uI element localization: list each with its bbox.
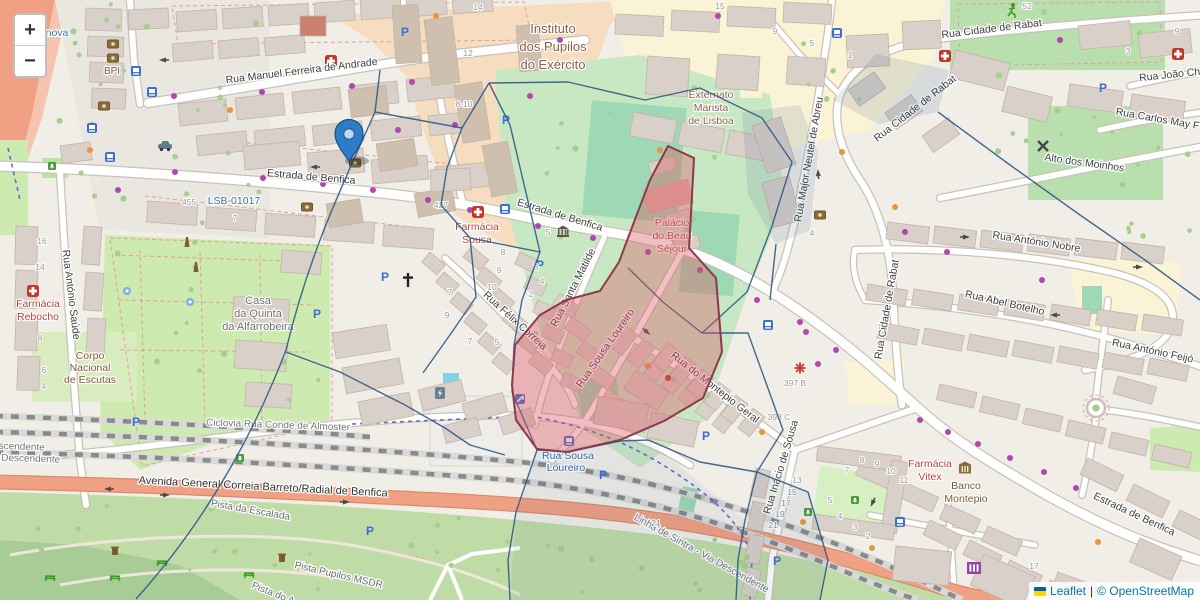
- house-number: 11: [900, 475, 909, 485]
- place-label: Farmácia: [908, 458, 952, 470]
- tree: [1187, 228, 1192, 233]
- tree: [120, 196, 126, 202]
- shop-dot-icon: [590, 235, 596, 241]
- shop-dot-icon: [815, 361, 821, 367]
- shop-dot-icon: [754, 297, 760, 303]
- fountain-icon: [186, 298, 194, 306]
- map-tiles[interactable]: PPPPPPPPPPPRua Manuel Ferreira de Andrad…: [0, 0, 1200, 600]
- street-label: Rua António Saúde: [60, 249, 83, 340]
- tree: [144, 24, 150, 30]
- tree: [109, 2, 113, 6]
- map-container[interactable]: PPPPPPPPPPPRua Manuel Ferreira de Andrad…: [0, 0, 1200, 600]
- tree: [197, 368, 202, 373]
- tree: [1054, 108, 1060, 114]
- tree: [287, 398, 291, 402]
- tree: [449, 563, 454, 568]
- tree: [1024, 138, 1029, 143]
- shop-dot-icon: [797, 319, 803, 325]
- tree: [212, 549, 217, 554]
- tree: [272, 563, 276, 567]
- tree: [218, 86, 222, 90]
- shop-dot-icon: [260, 175, 266, 181]
- atm-icon: [108, 54, 119, 62]
- place-label: Nacional: [70, 362, 111, 374]
- place-label: Corpo: [76, 350, 105, 362]
- shop-dot-icon: [395, 127, 401, 133]
- tree: [92, 193, 97, 198]
- building: [17, 356, 40, 391]
- tree: [830, 68, 836, 74]
- oneway-arrow-icon: [815, 169, 821, 179]
- shop-dot-icon: [349, 83, 355, 89]
- parking-icon: P: [702, 429, 710, 443]
- tree: [154, 359, 160, 365]
- tree: [122, 69, 126, 73]
- tree: [456, 516, 461, 521]
- building: [176, 9, 217, 32]
- house-number: 4: [540, 276, 545, 286]
- tree: [556, 146, 560, 150]
- tree: [196, 108, 200, 112]
- house-number: 2: [529, 289, 534, 299]
- house-number: 9: [1175, 26, 1180, 36]
- building: [83, 272, 104, 311]
- building: [326, 199, 363, 228]
- house-number: 9: [773, 26, 778, 36]
- house-number: 3: [853, 522, 858, 532]
- building: [967, 334, 1009, 357]
- shop-dot-icon: [975, 441, 981, 447]
- place-label: BPI: [104, 66, 120, 77]
- house-number: 7: [468, 336, 473, 346]
- place-label: Vitex: [918, 471, 942, 483]
- attribution-control: Leaflet | © OpenStreetMap: [1029, 582, 1200, 600]
- tree: [76, 527, 81, 532]
- amenity-dot-icon: [759, 429, 765, 435]
- tree: [545, 171, 550, 176]
- place-label: da Alfarrobeira: [222, 321, 294, 333]
- building: [727, 6, 776, 28]
- shop-dot-icon: [370, 187, 376, 193]
- house-number: 13: [792, 475, 802, 485]
- bus-stop-icon: [105, 152, 115, 162]
- tree: [1010, 131, 1015, 136]
- tree: [200, 220, 205, 225]
- house-number: 15: [715, 1, 725, 11]
- building: [422, 252, 446, 275]
- road: [1106, 410, 1200, 428]
- svg-text:P: P: [313, 307, 321, 321]
- tree: [1185, 151, 1191, 157]
- roundabout-island: [1093, 405, 1100, 412]
- zoom-in-button[interactable]: +: [15, 15, 45, 46]
- building: [15, 226, 38, 265]
- tree: [184, 191, 189, 196]
- tree: [104, 17, 109, 22]
- building: [922, 328, 964, 351]
- amenity-dot-icon: [839, 149, 845, 155]
- place-label: Rebocho: [17, 311, 59, 323]
- building: [464, 312, 488, 335]
- house-number: 9: [445, 310, 450, 320]
- building: [902, 20, 941, 50]
- building: [243, 141, 301, 170]
- shop-dot-icon: [944, 249, 950, 255]
- house-number: 5: [810, 38, 815, 48]
- attribution-separator: |: [1090, 584, 1093, 598]
- tree: [559, 121, 564, 126]
- svg-text:P: P: [502, 113, 510, 127]
- tree: [223, 103, 227, 107]
- place-label: de Escutas: [64, 374, 116, 386]
- shop-dot-icon: [1039, 277, 1045, 283]
- charging-station-icon: [435, 387, 445, 399]
- bus-stop-icon: [147, 87, 157, 97]
- house-number: 17: [1029, 561, 1039, 571]
- amenity-dot-icon: [227, 107, 233, 113]
- building: [300, 16, 326, 36]
- house-number: 9: [875, 459, 880, 469]
- building: [450, 292, 474, 315]
- place-label: da Quinta: [234, 308, 283, 320]
- house-number: 14: [35, 262, 45, 272]
- building: [1078, 21, 1132, 50]
- fountain-icon: [123, 287, 131, 295]
- tree: [172, 154, 178, 160]
- building: [376, 138, 418, 172]
- tree: [99, 83, 103, 87]
- place-label: Casa: [245, 295, 272, 307]
- tree: [316, 378, 320, 382]
- tree: [807, 82, 811, 86]
- tree: [57, 118, 63, 124]
- shop-dot-icon: [1007, 455, 1013, 461]
- waste-bin-icon: [111, 547, 119, 555]
- building: [645, 56, 690, 97]
- tree: [192, 240, 197, 245]
- building: [265, 213, 316, 237]
- tree: [78, 170, 83, 175]
- place-label: Instituto: [530, 21, 576, 36]
- svg-text:P: P: [702, 429, 710, 443]
- house-number: 8-10: [455, 99, 472, 109]
- svg-text:P: P: [132, 415, 140, 429]
- bus-stop-icon: [832, 28, 842, 38]
- house-number: 8: [860, 455, 865, 465]
- building: [716, 54, 760, 91]
- tree: [115, 251, 121, 257]
- tree: [706, 393, 711, 398]
- place-label: dos Pupilos: [519, 39, 587, 54]
- church-icon: [403, 273, 413, 287]
- svg-text:P: P: [401, 25, 409, 39]
- amenity-dot-icon: [1095, 539, 1101, 545]
- tree: [246, 183, 250, 187]
- house-number: 7: [448, 287, 453, 297]
- building: [615, 14, 664, 36]
- tree: [1140, 233, 1146, 239]
- tree: [189, 287, 194, 292]
- tree: [185, 321, 189, 325]
- tree: [39, 547, 44, 552]
- tree: [1136, 163, 1140, 167]
- bus-stop-icon: [131, 66, 141, 76]
- building: [332, 324, 390, 358]
- ukraine-flag-icon: [1034, 587, 1046, 596]
- building: [933, 226, 977, 248]
- bus-stop-icon: [895, 517, 905, 527]
- shop-dot-icon: [527, 93, 533, 99]
- tree: [496, 567, 501, 572]
- shop-dot-icon: [115, 187, 121, 193]
- tree: [505, 540, 509, 544]
- building: [1108, 432, 1149, 456]
- road: [853, 250, 865, 300]
- tree: [996, 72, 1002, 78]
- subsection-polygon-fill[interactable]: [736, 472, 828, 600]
- tree: [609, 111, 613, 115]
- tree: [435, 523, 440, 528]
- tree: [572, 145, 578, 151]
- house-number: 3: [1126, 46, 1131, 56]
- tree: [1092, 115, 1096, 119]
- building: [1113, 376, 1156, 404]
- building: [235, 93, 285, 120]
- shop-dot-icon: [259, 89, 265, 95]
- house-number: 52: [1022, 1, 1032, 11]
- tree: [1127, 230, 1131, 234]
- tree: [253, 20, 259, 26]
- tree: [115, 24, 120, 29]
- bus-stop-icon: [87, 123, 97, 133]
- playground-green-icon: [851, 496, 859, 504]
- atm-icon: [815, 211, 826, 219]
- tree: [995, 148, 1001, 154]
- parking-icon: P: [132, 415, 140, 429]
- pharmacy-icon: [472, 206, 484, 218]
- amenity-dot-icon: [87, 147, 93, 153]
- house-number: 4: [42, 381, 47, 391]
- tree: [174, 331, 178, 335]
- amenity-dot-icon: [869, 545, 875, 551]
- amenity-dot-icon: [657, 147, 663, 153]
- tree: [232, 549, 238, 555]
- building: [783, 2, 832, 24]
- tree: [188, 568, 192, 572]
- parking-icon: P: [381, 270, 389, 284]
- burst-icon: [795, 363, 806, 374]
- building: [60, 142, 92, 164]
- tree: [712, 155, 717, 160]
- shop-dot-icon: [1073, 485, 1079, 491]
- tree: [1129, 221, 1133, 225]
- shop-dot-icon: [833, 347, 839, 353]
- pharmacy-icon: [27, 285, 39, 297]
- place-label: de Lisboa: [688, 115, 734, 127]
- house-number: 14: [473, 2, 483, 12]
- tree: [256, 190, 261, 195]
- tree: [1059, 133, 1063, 137]
- svg-text:P: P: [1099, 81, 1107, 95]
- place-label: Externato: [689, 89, 734, 101]
- house-number: 4: [810, 228, 815, 238]
- shop-dot-icon: [172, 169, 178, 175]
- building: [1057, 346, 1099, 369]
- house-number: 455: [182, 197, 196, 207]
- building: [936, 384, 977, 408]
- parking-icon: P: [1099, 81, 1107, 95]
- building: [218, 38, 259, 59]
- tree: [1156, 146, 1160, 150]
- parking-icon: P: [313, 307, 321, 321]
- tree: [1120, 182, 1126, 188]
- atm-icon: [302, 203, 313, 211]
- parking-icon: P: [502, 113, 510, 127]
- shop-dot-icon: [902, 229, 908, 235]
- building: [786, 56, 826, 87]
- tree: [226, 151, 231, 156]
- parking-icon: P: [366, 524, 374, 538]
- place-label: Farmácia: [16, 298, 60, 310]
- leaflet-link[interactable]: Leaflet: [1050, 584, 1086, 598]
- landuse-area: [0, 140, 28, 235]
- building: [206, 207, 257, 231]
- house-number: 7: [233, 213, 238, 223]
- house-number: 1: [848, 50, 853, 60]
- tree: [73, 41, 78, 46]
- place-label: Banco: [951, 480, 981, 492]
- shop-dot-icon: [803, 329, 809, 335]
- house-number: 6: [42, 365, 47, 375]
- road: [795, 408, 918, 450]
- atm-icon: [108, 40, 119, 48]
- tree: [1041, 9, 1047, 15]
- attraction-icon: [967, 562, 981, 574]
- tree: [1110, 130, 1114, 134]
- zoom-control: + −: [13, 13, 47, 78]
- building: [172, 41, 213, 62]
- tree: [217, 95, 223, 101]
- tree: [71, 28, 77, 34]
- street-label: LSB-01017: [208, 195, 261, 207]
- street-label: nova: [46, 27, 69, 39]
- building: [979, 396, 1020, 420]
- house-number: 5: [546, 227, 551, 237]
- house-number: 10: [487, 282, 497, 292]
- building: [178, 99, 228, 126]
- amenity-dot-icon: [433, 13, 439, 19]
- house-number: 5: [828, 495, 833, 505]
- street-label: Linha de Sintra - Via Ascendente: [0, 437, 45, 453]
- house-number: 8: [501, 247, 506, 257]
- building: [492, 352, 516, 375]
- pharmacy-icon: [939, 50, 951, 62]
- bus-stop-icon: [500, 204, 510, 214]
- parking-icon: P: [401, 25, 409, 39]
- building: [671, 10, 720, 32]
- memorial-icon: [185, 237, 190, 247]
- tree: [435, 550, 439, 554]
- tree: [105, 504, 109, 508]
- shop-dot-icon: [171, 93, 177, 99]
- tree: [35, 527, 40, 532]
- tree: [308, 552, 312, 556]
- place-label: Montepio: [944, 493, 987, 505]
- building: [1012, 340, 1054, 363]
- tree: [1126, 226, 1131, 231]
- tree: [221, 351, 227, 357]
- shop-dot-icon: [1057, 37, 1063, 43]
- shop-dot-icon: [715, 13, 721, 19]
- shop-dot-icon: [945, 429, 951, 435]
- tree: [316, 587, 320, 591]
- zoom-out-button[interactable]: −: [15, 46, 45, 76]
- shop-dot-icon: [535, 223, 541, 229]
- building: [1002, 86, 1053, 122]
- shop-dot-icon: [1041, 469, 1047, 475]
- bus-stop-icon: [763, 320, 773, 330]
- playground-green-icon: [48, 162, 56, 170]
- building: [922, 118, 960, 153]
- house-number: 4: [838, 511, 843, 521]
- building: [264, 35, 305, 56]
- building: [1138, 29, 1192, 58]
- house-number: 2: [866, 531, 871, 541]
- building: [1022, 408, 1063, 432]
- shop-dot-icon: [409, 79, 415, 85]
- pharmacy-icon: [1172, 48, 1184, 60]
- building: [81, 226, 102, 265]
- atm-icon: [99, 102, 110, 110]
- tree: [801, 41, 806, 46]
- house-number: 9: [497, 265, 502, 275]
- building: [892, 546, 951, 586]
- place-label: Farmácia: [455, 221, 499, 233]
- building: [383, 225, 434, 249]
- waste-bin-icon: [278, 554, 286, 562]
- place-label: do Exército: [520, 57, 585, 72]
- amenity-dot-icon: [892, 204, 898, 210]
- tree: [77, 52, 82, 57]
- building: [430, 168, 471, 192]
- tree: [1137, 30, 1142, 35]
- house-number: 397 B: [784, 378, 807, 388]
- house-number: 10: [886, 466, 896, 476]
- bank-icon: [959, 462, 971, 474]
- building: [1065, 420, 1106, 444]
- house-number: 8: [38, 333, 43, 343]
- svg-text:P: P: [366, 524, 374, 538]
- house-number: 5: [495, 337, 500, 347]
- osm-copyright-link[interactable]: © OpenStreetMap: [1097, 584, 1194, 598]
- building: [1074, 238, 1118, 260]
- house-number: 16: [37, 236, 47, 246]
- svg-text:P: P: [381, 270, 389, 284]
- building: [245, 382, 292, 408]
- shop-dot-icon: [425, 197, 431, 203]
- tree: [408, 542, 414, 548]
- building: [292, 87, 342, 114]
- house-number: 7: [845, 465, 850, 475]
- house-number: 12: [463, 48, 473, 58]
- place-label: Marista: [694, 102, 729, 114]
- shop-dot-icon: [917, 417, 923, 423]
